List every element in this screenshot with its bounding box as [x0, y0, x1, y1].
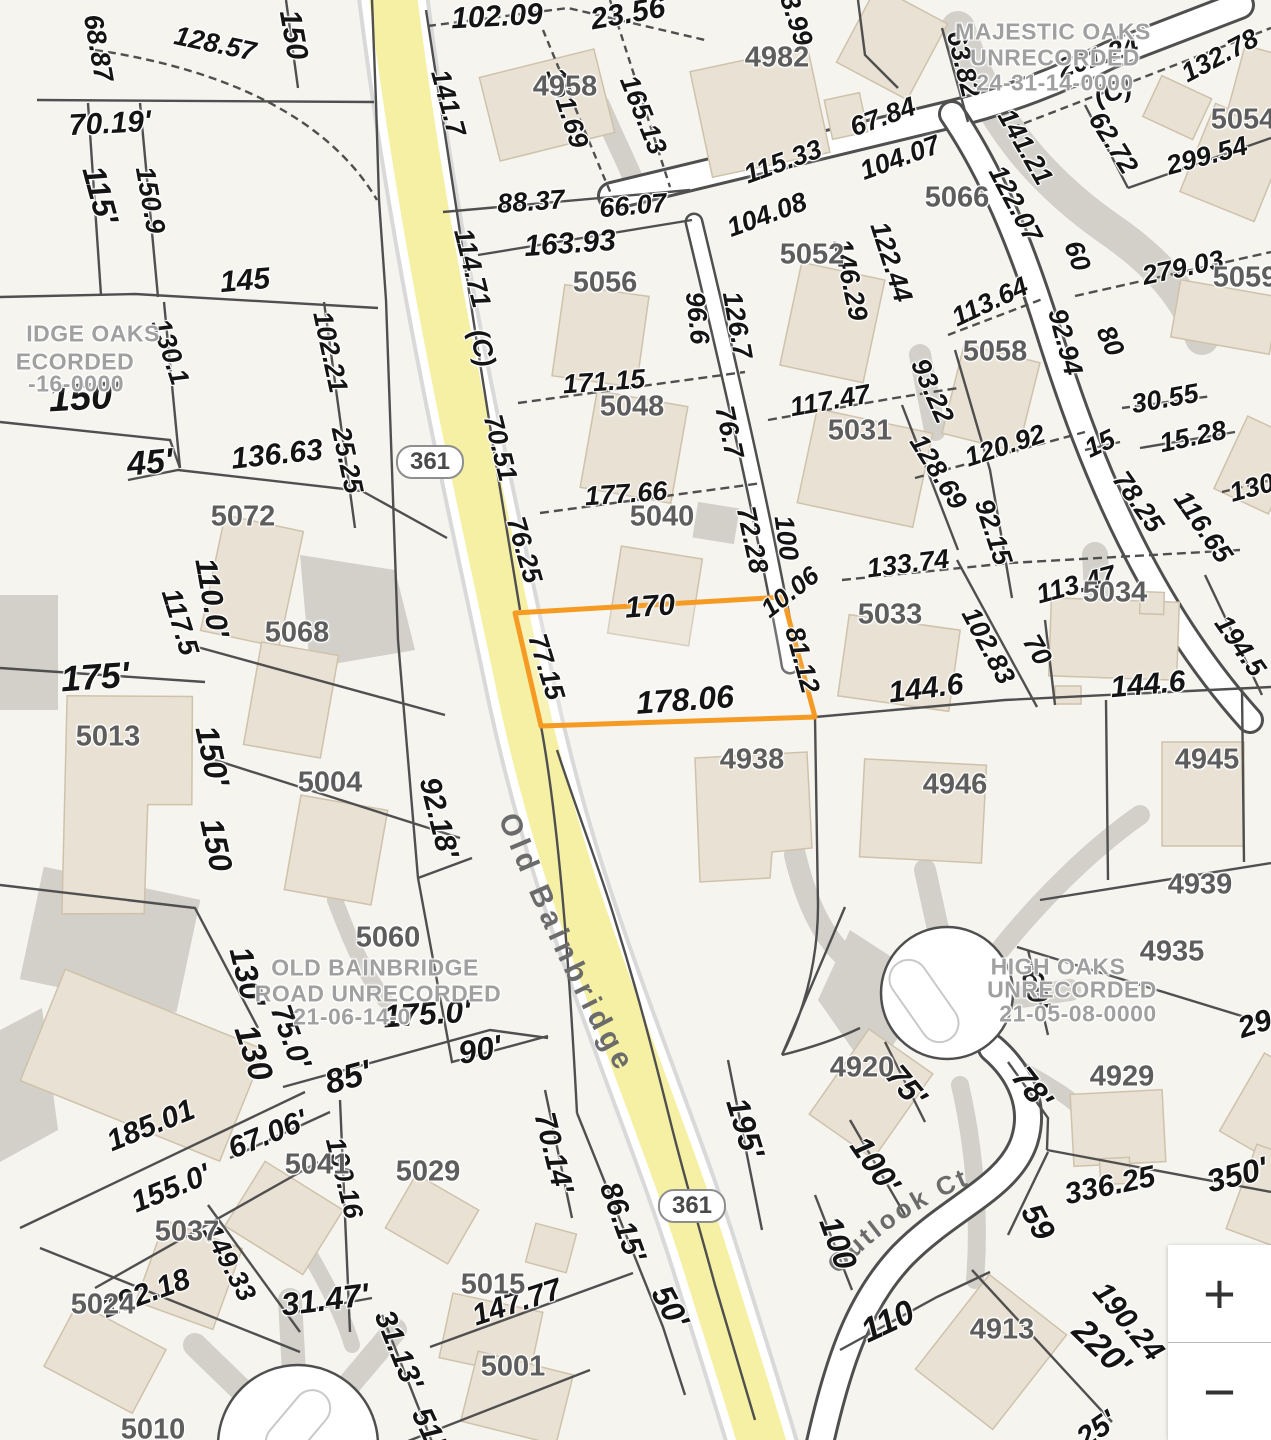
zoom-in-button[interactable]: +: [1168, 1245, 1271, 1342]
zoom-control: + −: [1168, 1245, 1271, 1440]
zoom-out-button[interactable]: −: [1168, 1343, 1271, 1440]
map-viewport[interactable]: Old Bainbridge Rd Outlook Ct 68.87128.57…: [0, 0, 1271, 1440]
selected-parcel-outline[interactable]: [515, 597, 815, 726]
map-canvas[interactable]: Old Bainbridge Rd Outlook Ct: [0, 0, 1271, 1440]
